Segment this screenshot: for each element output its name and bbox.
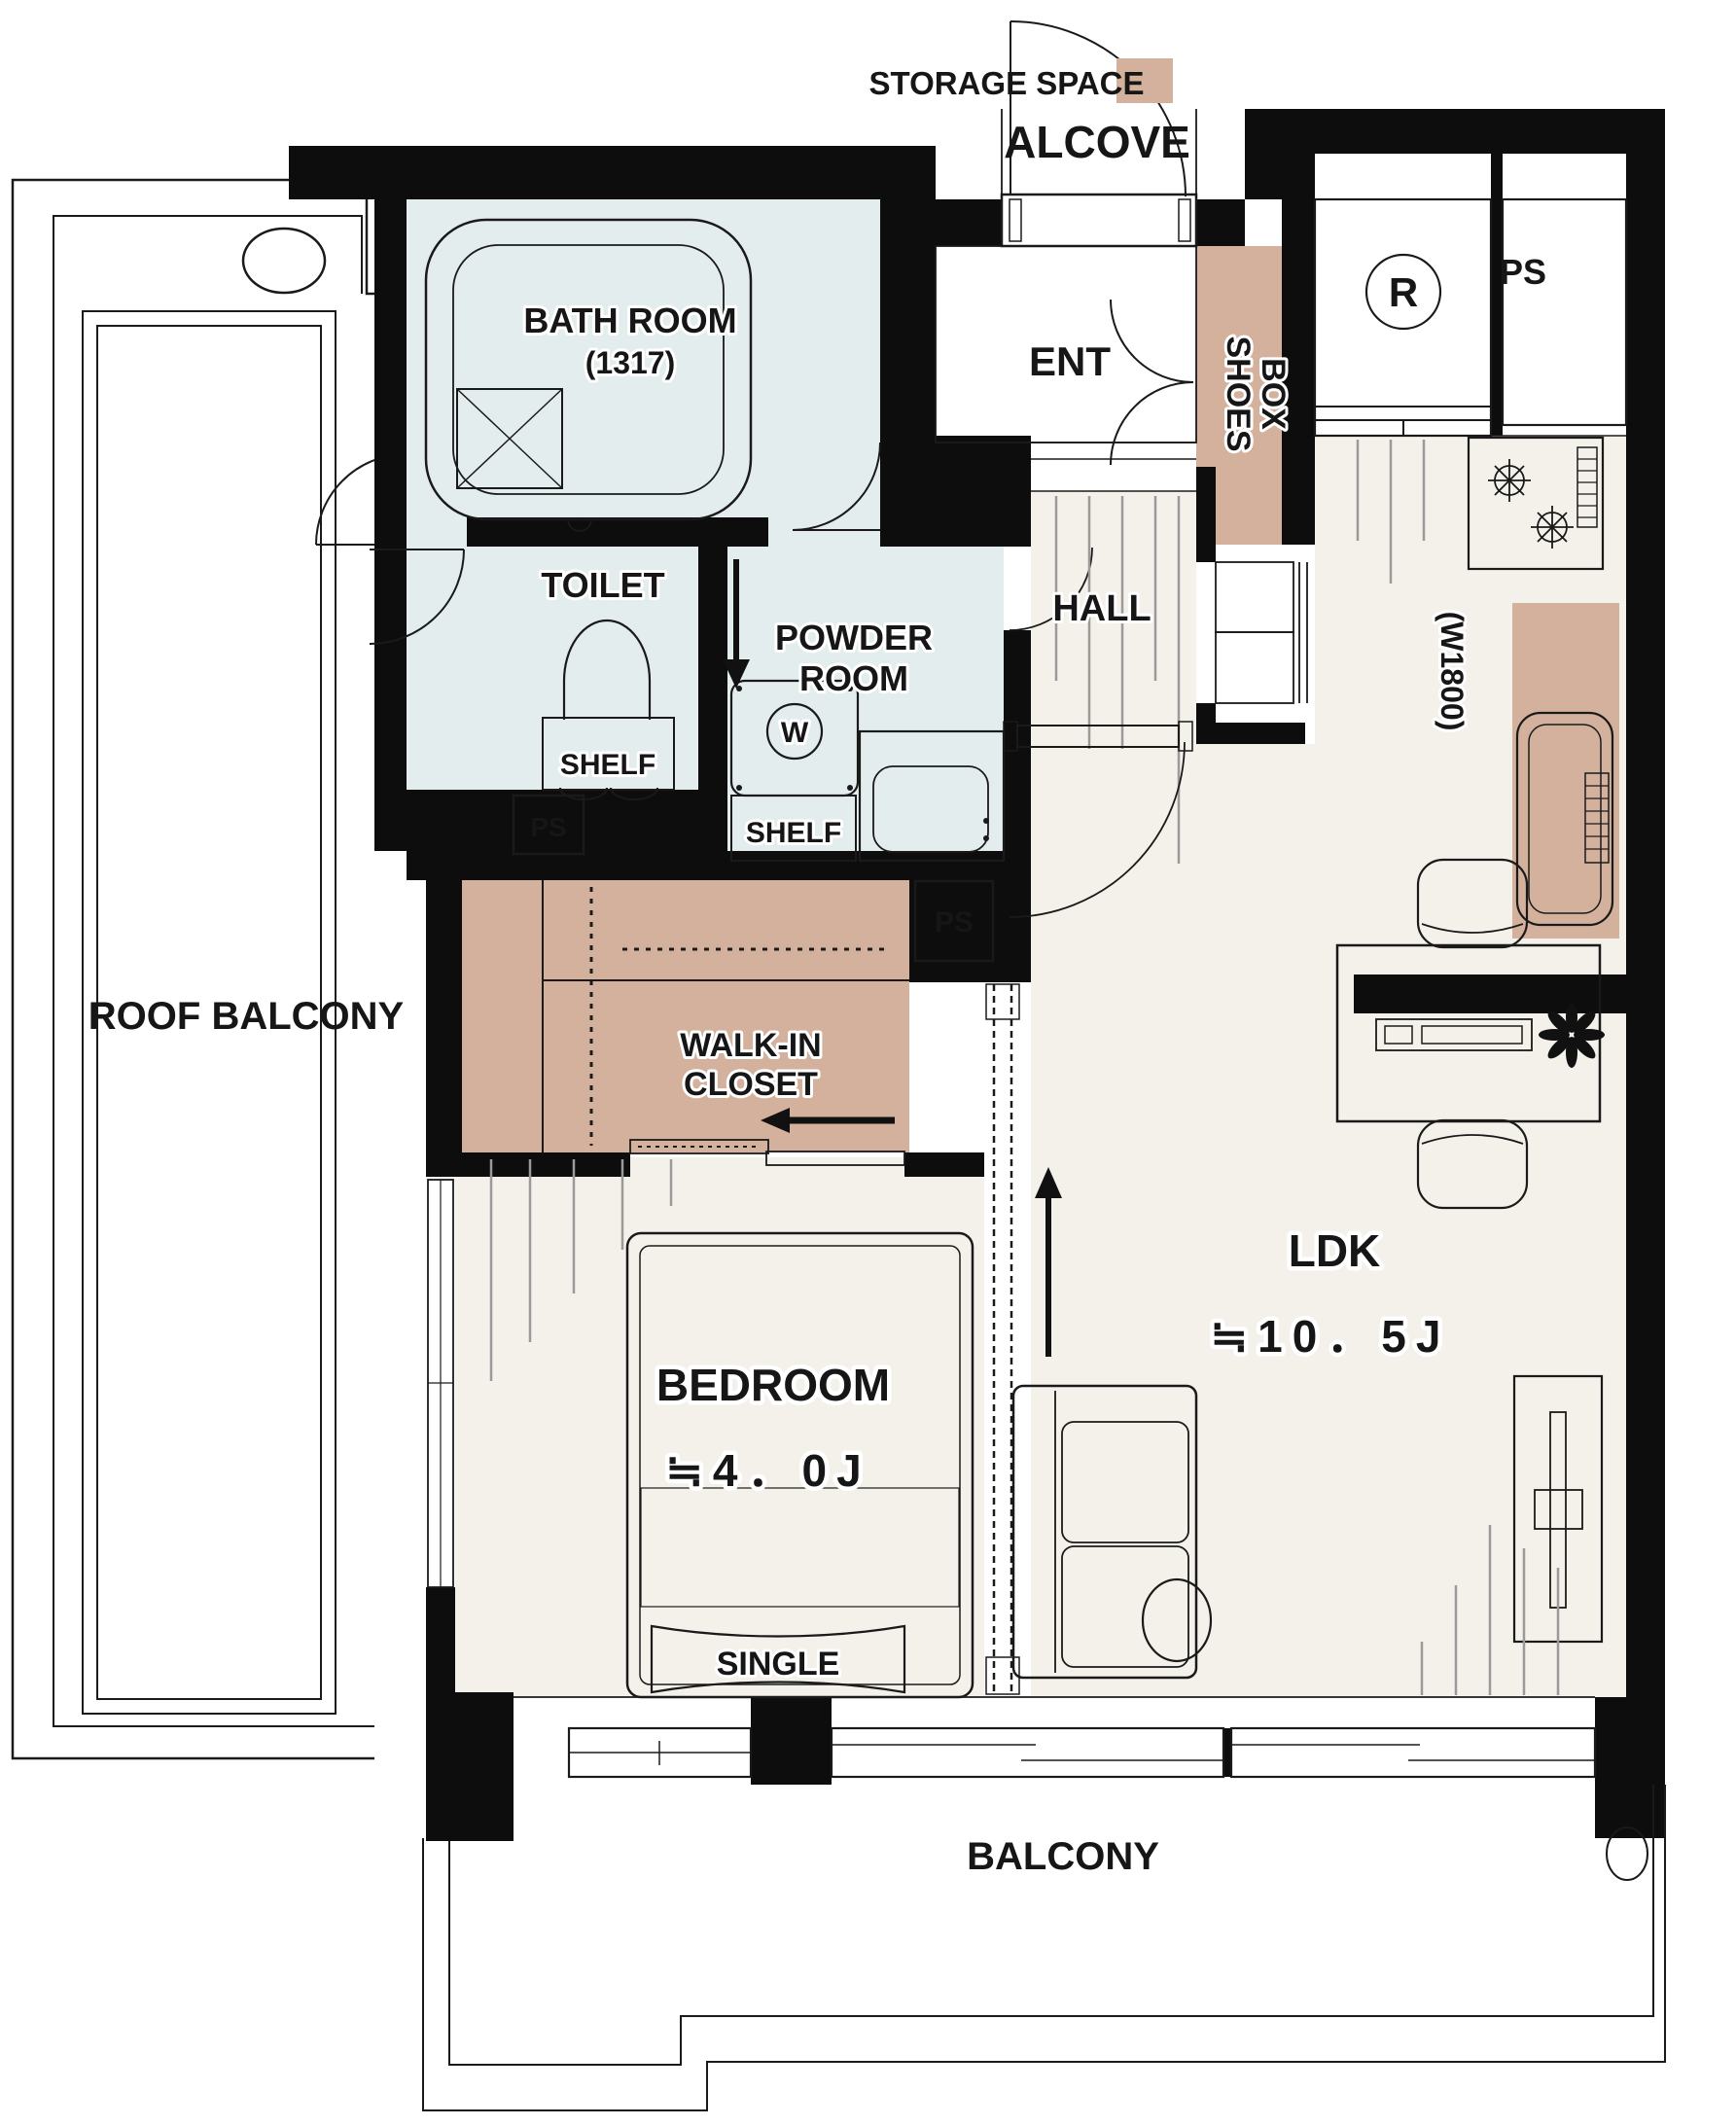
vanity-tap-dot [983,835,989,841]
walk-in-closet-floor [462,880,909,1152]
wall-threshold-right [1196,199,1245,246]
wall-wic-top-band [407,851,1031,880]
wall-pillar-bottom [751,1697,832,1785]
label-bedroom: BEDROOM [656,1360,890,1410]
label-ldk: LDK [1289,1225,1381,1276]
wall-alcove-left [875,146,936,199]
legend-storage-label: STORAGE SPACE [869,65,1145,101]
wall-top-right-band [1245,109,1665,154]
toilet-door-gap [407,517,467,547]
wall-hall-right-a [1196,467,1216,562]
label-ps-kitchen: PS [1500,252,1546,292]
bedroom-floor [455,1157,984,1697]
balcony-rail-inner [449,1785,1653,2065]
shoes-box-door-arc-lower [1111,382,1193,465]
wall-ent-left [880,199,936,547]
ps-box-kitchen [1503,199,1626,425]
wall-bedroom-window-south [426,1587,455,1692]
floor-plan-page: STORAGE SPACE ALCOVE ENT SHOES BOX R PS … [0,0,1736,2126]
label-wic-1: WALK-IN [680,1027,821,1064]
window-ldk-left [832,1728,1223,1777]
label-ps-closet: PS [935,906,974,939]
wall-wic-left [426,880,462,1152]
label-kitchen-width: (W1800) [1435,612,1470,731]
label-bath-room: BATH ROOM [523,301,736,340]
washer-pan-bolt [736,785,742,791]
label-bedroom-size: ≒4．0J [665,1445,870,1496]
wall-wic-bottom-right [904,1152,984,1177]
wall-right [1626,154,1665,1785]
balcony [423,1785,1665,2110]
label-ps-toilet: PS [530,812,566,842]
label-hall: HALL [1052,588,1151,629]
wall-corner-bottom-right [1595,1697,1665,1838]
powder-floor [727,547,1004,861]
hall-closet-upper [1216,562,1293,632]
wall-kitchen-bottom [1354,974,1626,1013]
label-ent: ENT [1029,338,1111,384]
label-washer-mark: W [781,717,809,749]
wall-corner-bottom-left [426,1692,514,1841]
bath-door-gap [768,517,880,547]
label-shoes-box-2: BOX [1255,358,1292,430]
wall-hall-stub [1196,723,1305,744]
entrance-door-arc [1010,21,1186,196]
vanity-tap-dot [983,818,989,824]
wall-shoes-top [1245,154,1315,199]
door-jamb-right [1179,199,1190,241]
door-jamb-left [1010,199,1021,241]
entrance-threshold [1002,195,1196,246]
label-shoes-box-1: SHOES [1220,336,1257,451]
drain-icon [243,229,325,293]
wall-top-bath [289,146,885,199]
wall-left-upper [374,199,407,851]
label-powder-1: POWDER [775,618,933,657]
label-alcove: ALCOVE [1004,117,1190,167]
fridge-box [1315,199,1491,436]
wall-bath-bottom [467,517,768,547]
wall-window-mullion [1223,1728,1231,1777]
label-balcony: BALCONY [967,1835,1159,1878]
balcony-rail-outer [423,1785,1665,2110]
floor-plan-svg: STORAGE SPACE ALCOVE ENT SHOES BOX R PS … [0,0,1736,2126]
wall-ent-corner [936,436,1031,547]
wall-fridge-ps-divider [1491,154,1503,436]
hall-closet-lower [1216,632,1293,703]
washer-pan-bolt [847,785,853,791]
label-shelf-powder: SHELF [746,817,841,849]
wall-toilet-powder-divider [698,547,727,861]
window-ldk-right [1231,1728,1595,1777]
label-toilet: TOILET [541,565,664,605]
roof-balcony-mid-line [53,216,374,1726]
top-right-units [1315,199,1626,436]
roof-balcony [13,180,407,1758]
wall-wic-bottom-left [426,1152,630,1177]
label-roof-balcony: ROOF BALCONY [89,995,405,1038]
wall-threshold-left [936,199,1002,246]
label-fridge-mark: R [1389,269,1418,315]
label-shelf-toilet: SHELF [560,749,655,781]
wall-powder-right [1004,630,1031,982]
partition-cap-top [986,984,1019,1019]
shoes-box-door-arc-upper [1111,300,1193,382]
label-wic-2: CLOSET [684,1066,818,1103]
label-bath-size: (1317) [585,345,676,380]
label-ldk-size: ≒10．5J [1211,1311,1451,1362]
label-powder-2: ROOM [799,658,908,698]
label-bed-type: SINGLE [717,1646,840,1683]
south-windows [514,1697,1595,1777]
